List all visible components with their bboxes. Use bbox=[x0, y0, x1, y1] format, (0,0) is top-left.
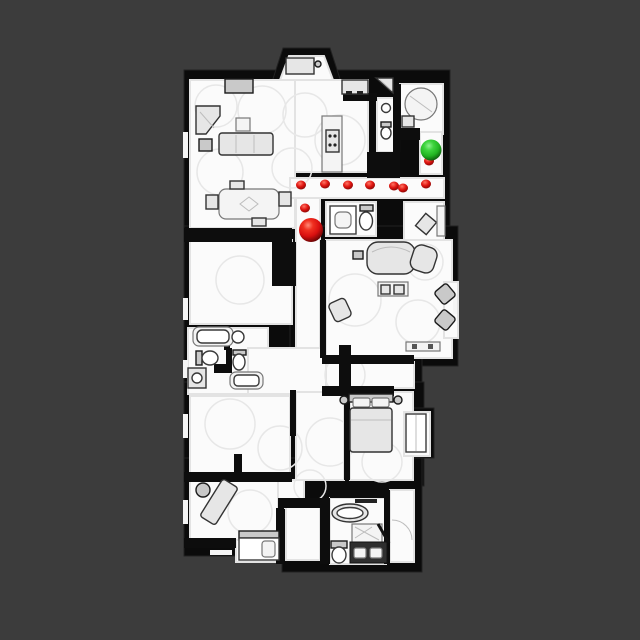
tub-faucet bbox=[355, 499, 377, 503]
wall-closet-east bbox=[320, 506, 330, 564]
wall-living-bedroom bbox=[184, 228, 292, 242]
dining-table bbox=[219, 189, 279, 219]
wall-bathroom-north bbox=[330, 490, 386, 498]
window-icon bbox=[210, 550, 232, 555]
pillow bbox=[372, 398, 389, 407]
wall-center-room-west bbox=[290, 390, 296, 436]
closet-room-floor bbox=[286, 506, 320, 560]
bay-item bbox=[315, 61, 321, 67]
toilet bbox=[332, 547, 346, 563]
wall-door-stub bbox=[234, 454, 242, 474]
window-icon bbox=[183, 298, 188, 320]
stove bbox=[326, 130, 339, 152]
floorplan-canvas bbox=[0, 0, 640, 640]
side-table bbox=[199, 139, 212, 151]
toilet bbox=[202, 351, 218, 365]
window-icon bbox=[183, 414, 188, 438]
plant bbox=[196, 483, 210, 497]
map-viewport bbox=[0, 0, 640, 640]
bed bbox=[350, 408, 392, 452]
path-dot bbox=[300, 204, 310, 213]
pillow bbox=[262, 541, 275, 557]
island-handle bbox=[346, 91, 352, 94]
wall-art bbox=[353, 251, 363, 259]
shelf bbox=[437, 206, 445, 236]
goal-marker bbox=[421, 140, 442, 161]
wall-topright-step bbox=[398, 128, 420, 140]
path-dot bbox=[343, 181, 353, 190]
toilet-tank bbox=[360, 205, 373, 211]
path-dot bbox=[421, 180, 431, 189]
nightstand bbox=[394, 396, 402, 404]
oval-bathtub-basin bbox=[337, 508, 363, 519]
wall-chunk bbox=[367, 152, 400, 178]
pedestal-sink bbox=[232, 331, 244, 343]
wall-lounge-west bbox=[320, 240, 326, 358]
bay-dresser bbox=[286, 58, 314, 74]
bathtub-basin bbox=[234, 375, 259, 386]
utility-sink bbox=[382, 104, 391, 113]
toilet-tank bbox=[381, 122, 391, 127]
path-dot bbox=[398, 184, 408, 193]
toilet bbox=[233, 354, 245, 370]
toilet-tank bbox=[196, 351, 202, 365]
sideboard bbox=[225, 79, 253, 93]
nightstand bbox=[340, 396, 348, 404]
wall-bath-divider3 bbox=[226, 348, 232, 370]
pillow bbox=[353, 398, 370, 407]
bed-frame bbox=[239, 531, 279, 538]
vanity-sink bbox=[370, 548, 382, 558]
path-dot bbox=[389, 182, 399, 191]
window-icon bbox=[183, 360, 188, 378]
path-dot bbox=[320, 180, 330, 189]
tv-bench bbox=[406, 342, 440, 351]
dining-chair bbox=[252, 218, 266, 226]
island-handle bbox=[357, 91, 363, 94]
window-icon bbox=[183, 500, 188, 524]
agent-marker bbox=[299, 218, 323, 242]
wall-guestroom-south bbox=[184, 538, 236, 548]
toilet bbox=[381, 127, 391, 139]
right-small-room-floor bbox=[390, 490, 414, 562]
bathtub-basin bbox=[197, 330, 229, 343]
vanity-sink bbox=[354, 548, 366, 558]
coffee-table bbox=[236, 118, 250, 131]
frame bbox=[381, 285, 390, 294]
dining-chair bbox=[279, 192, 291, 206]
sofa bbox=[219, 133, 273, 155]
washer-drum bbox=[335, 212, 351, 228]
vanity-sink bbox=[192, 373, 202, 383]
kitchen-island bbox=[342, 80, 368, 94]
toilet bbox=[360, 212, 373, 230]
wall-strip-divider bbox=[339, 345, 351, 391]
small-box bbox=[402, 116, 414, 127]
wall-lounge-south bbox=[322, 355, 414, 364]
frame bbox=[394, 285, 404, 294]
path-dot bbox=[365, 181, 375, 190]
wall-pillar bbox=[272, 242, 296, 286]
window-icon bbox=[183, 132, 188, 158]
dining-chair bbox=[230, 181, 244, 189]
wall-utility bbox=[393, 84, 401, 152]
dining-chair bbox=[206, 195, 218, 209]
path-dot bbox=[296, 181, 306, 190]
center-room-floor bbox=[296, 392, 344, 480]
